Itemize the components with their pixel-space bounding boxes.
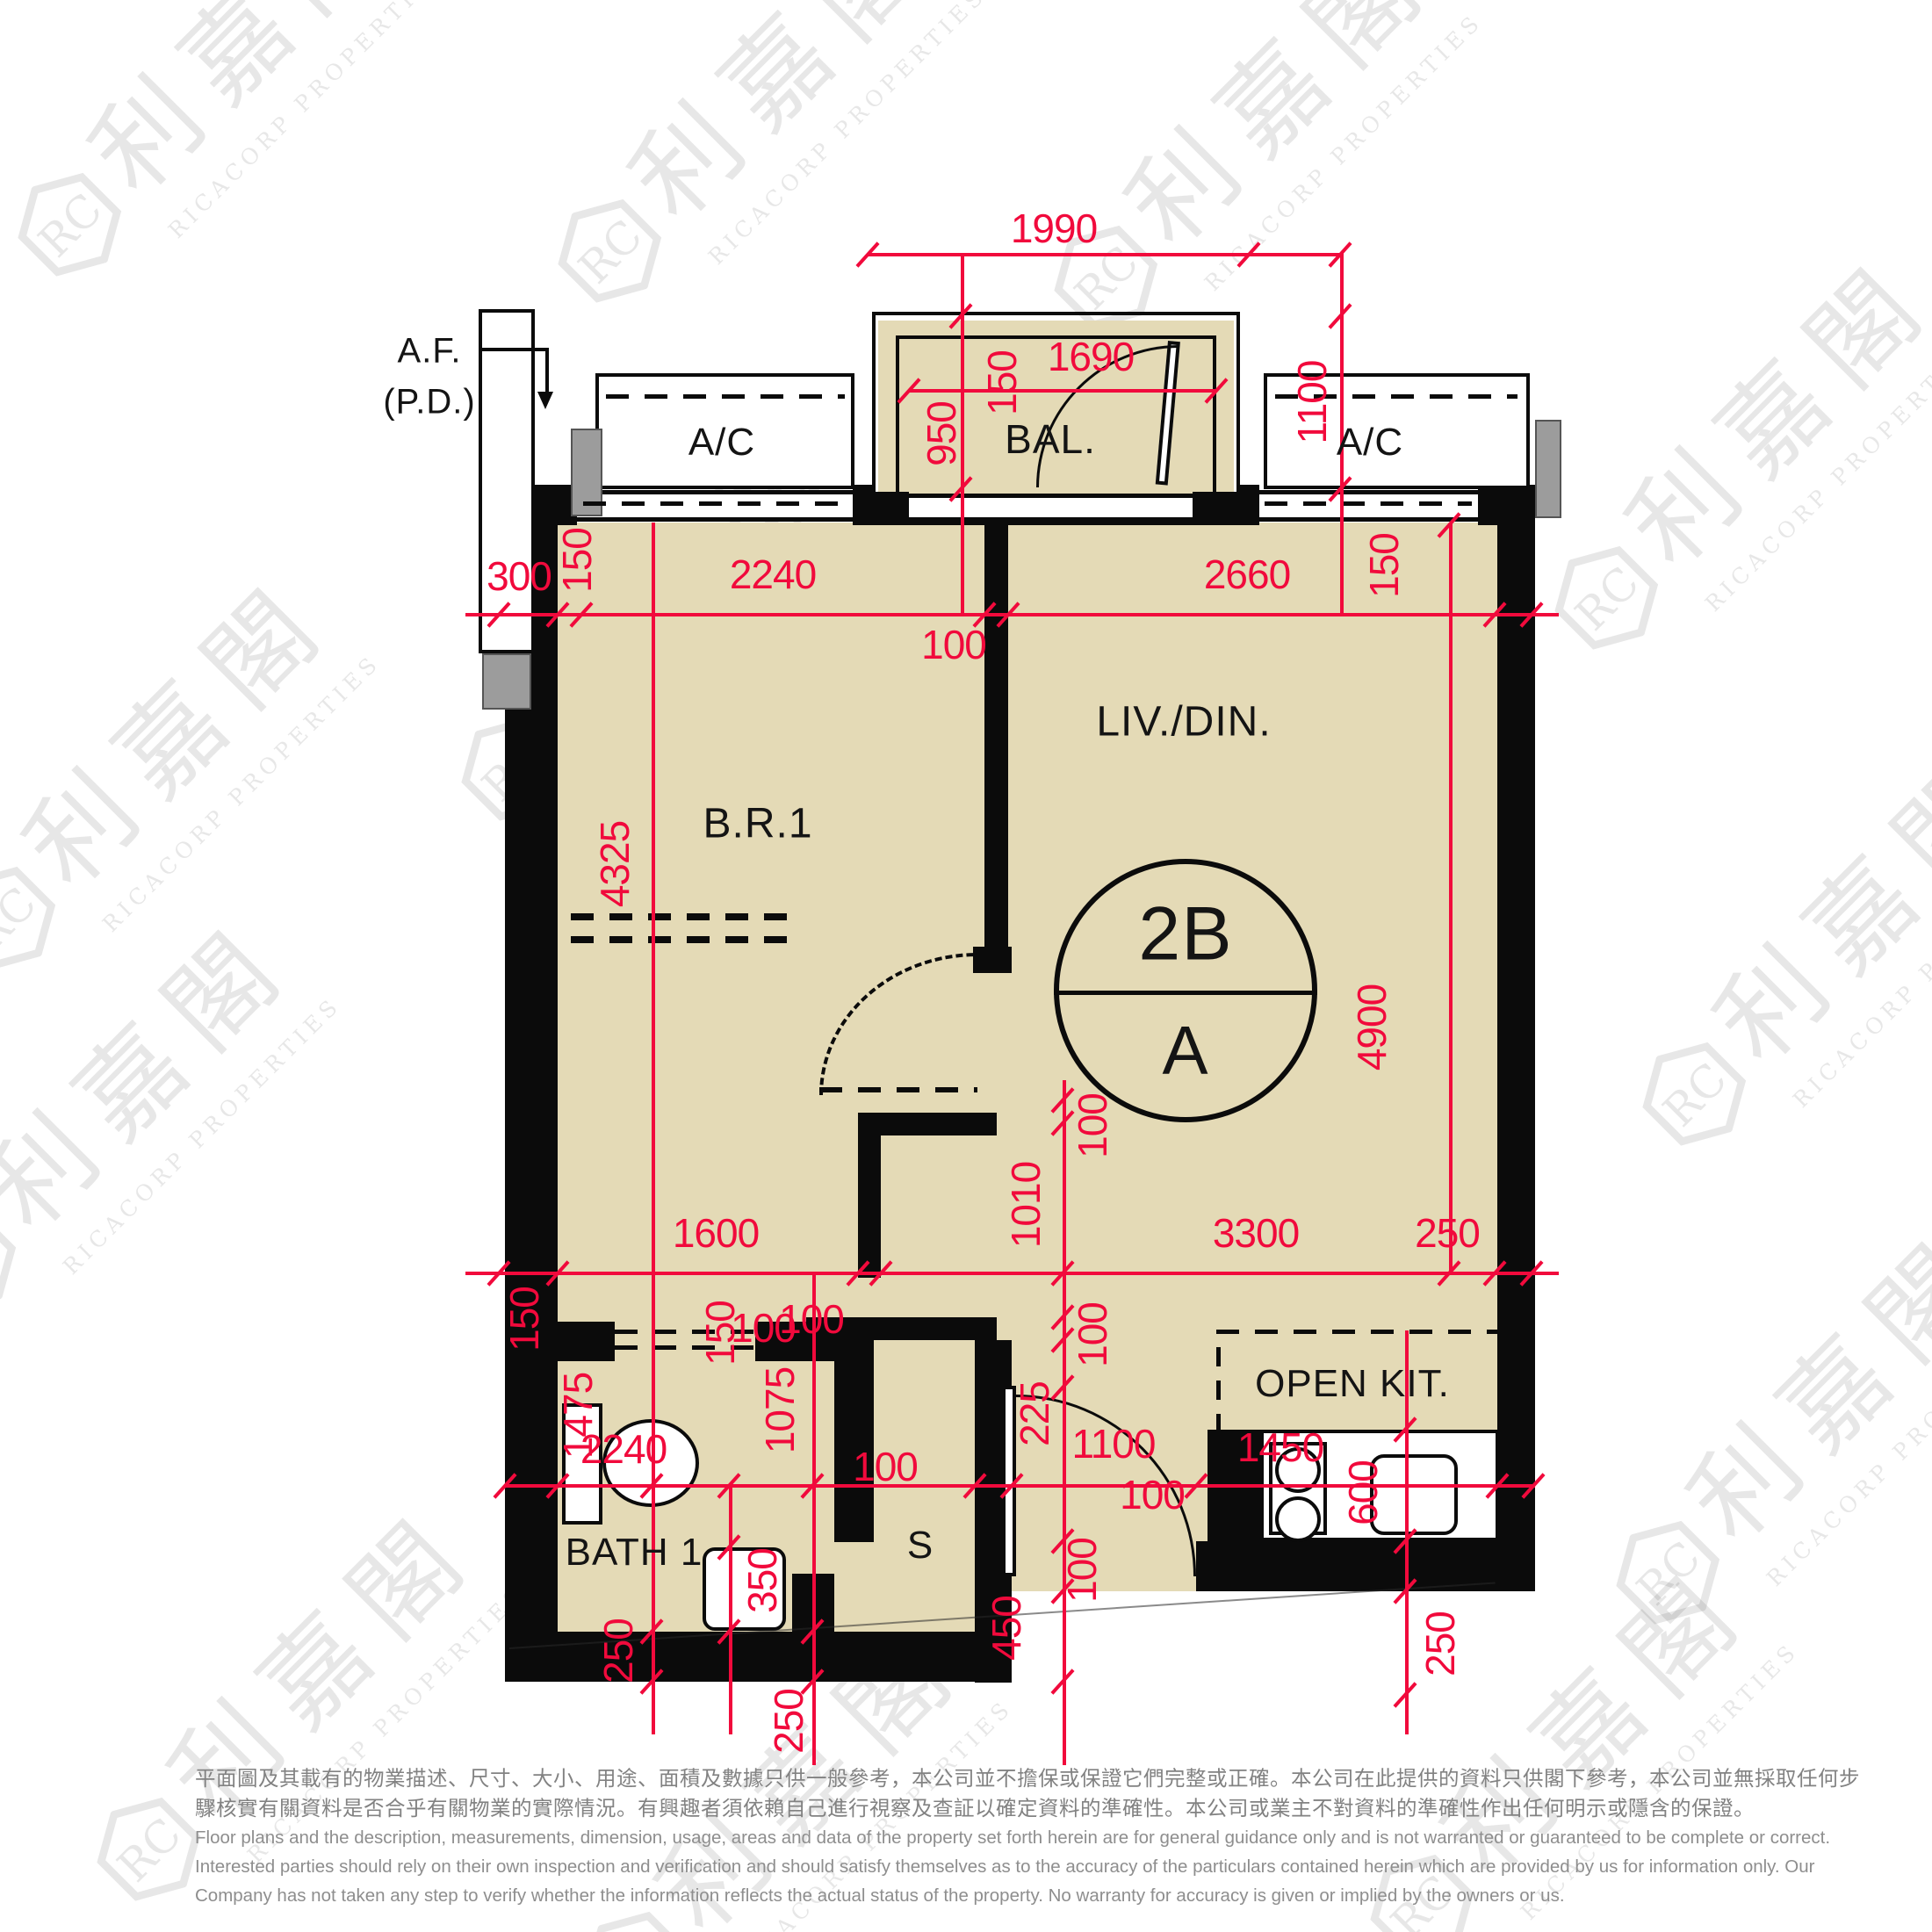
unit-badge-circle-top: 2B	[1138, 891, 1232, 978]
window-wall-right	[1259, 490, 1478, 522]
dim-line	[729, 1484, 732, 1734]
af-leader	[545, 348, 549, 393]
pipe-duct-cap	[482, 653, 531, 710]
bath-bottom-wall	[505, 1632, 1012, 1682]
floorplan-drawing: 2BA1990169015095011003001502240100266015…	[0, 0, 1932, 1932]
dim-label-3300: 3300	[1213, 1213, 1299, 1253]
window-cap	[853, 485, 872, 525]
dim-label-150: 150	[982, 350, 1022, 415]
af-leader	[479, 348, 549, 351]
ac-louvre-dash	[606, 394, 845, 399]
dim-label-100: 100	[853, 1446, 918, 1487]
room-label-living-dining: LIV./DIN.	[1096, 698, 1271, 746]
disclaimer-zh-line2: 驟核實有關資料是否合乎有關物業的實際情況。有興趣者須依賴自己進行視察及查証以確定…	[195, 1793, 1860, 1823]
window-dash	[1265, 501, 1472, 506]
dim-label-150: 150	[504, 1287, 544, 1352]
af-leader-arrowhead	[537, 392, 553, 409]
dim-label-250: 250	[1420, 1611, 1460, 1676]
dim-label-4325: 4325	[595, 821, 635, 907]
wardrobe-dash	[571, 913, 801, 920]
disclaimer-en-line1: Floor plans and the description, measure…	[195, 1823, 1860, 1852]
dim-label-100: 100	[1120, 1474, 1185, 1515]
window-cap	[1240, 485, 1259, 525]
nook-wall-top	[858, 1113, 997, 1135]
dim-label-250: 250	[598, 1618, 638, 1683]
floorplan-page: RC利嘉閣RICACORP PROPERTIESRC利嘉閣RICACORP PR…	[0, 0, 1932, 1932]
dim-label-100: 100	[1072, 1302, 1113, 1367]
dim-label-100: 100	[921, 624, 986, 665]
dim-label-1690: 1690	[1048, 336, 1134, 377]
bath-store-divider	[834, 1322, 874, 1542]
label-af: A.F.	[398, 332, 462, 371]
kitchen-boundary-dash-v	[1216, 1330, 1221, 1433]
disclaimer-zh-line1: 平面圖及其載有的物業描述、尺寸、大小、用途、面積及數據只供一般參考，本公司並不擔…	[195, 1763, 1860, 1793]
dim-line	[1449, 523, 1453, 1273]
dim-label-1990: 1990	[1011, 208, 1097, 249]
dim-label-250: 250	[1415, 1213, 1480, 1253]
dim-label-950: 950	[921, 401, 962, 466]
bedroom-door-jamb	[973, 947, 1012, 973]
window-dash	[583, 501, 847, 506]
room-label-ac-right: A/C	[1337, 421, 1403, 465]
burner	[1275, 1496, 1321, 1542]
room-label-store: S	[907, 1524, 934, 1568]
dim-line	[812, 1272, 816, 1765]
dim-label-250: 250	[768, 1689, 809, 1754]
right-wall	[1497, 485, 1535, 1591]
nook-wall-left	[858, 1135, 881, 1278]
dim-label-600: 600	[1343, 1460, 1383, 1525]
dim-label-150: 150	[1364, 533, 1404, 598]
dim-label-100: 100	[731, 1308, 796, 1348]
dim-label-2240: 2240	[580, 1429, 667, 1469]
dim-label-100: 100	[1072, 1093, 1113, 1158]
disclaimer-en-line3: Company has not taken any step to verify…	[195, 1881, 1860, 1910]
unit-badge-circle-divider	[1054, 991, 1317, 995]
dim-label-225: 225	[1014, 1381, 1055, 1446]
dim-label-300: 300	[487, 556, 551, 596]
dim-line	[909, 389, 1216, 393]
dim-line	[1063, 1080, 1066, 1765]
kitchen-boundary-dash	[1216, 1330, 1497, 1334]
disclaimer-en-line2: Interested parties should rely on their …	[195, 1852, 1860, 1881]
window-wall-left	[577, 490, 853, 522]
dim-label-1100: 1100	[1292, 361, 1332, 444]
room-label-balcony: BAL.	[1005, 415, 1096, 463]
window-cap	[1478, 485, 1497, 525]
bath-top-wall-left	[558, 1322, 615, 1361]
wardrobe-dash	[571, 936, 801, 943]
disclaimer-block: 平面圖及其載有的物業描述、尺寸、大小、用途、面積及數據只供一般參考，本公司並不擔…	[195, 1763, 1860, 1910]
dim-label-1100: 1100	[1072, 1424, 1156, 1464]
dim-label-100: 100	[1062, 1538, 1102, 1603]
dim-label-350: 350	[742, 1548, 782, 1613]
dim-label-4900: 4900	[1352, 984, 1392, 1071]
entry-bottom-wall	[1196, 1541, 1497, 1591]
room-label-ac-left: A/C	[688, 421, 755, 465]
dim-label-1075: 1075	[760, 1367, 800, 1453]
dim-line	[465, 613, 1559, 616]
room-label-open-kitchen: OPEN KIT.	[1255, 1362, 1450, 1406]
bedroom-living-wall	[984, 521, 1008, 953]
dim-label-1010: 1010	[1006, 1162, 1046, 1248]
dim-label-150: 150	[557, 528, 597, 593]
dim-label-2660: 2660	[1204, 554, 1290, 595]
label-pd: (P.D.)	[383, 383, 475, 422]
room-label-bath1: BATH 1	[566, 1531, 703, 1575]
unit-badge-circle-bottom: A	[1162, 1011, 1208, 1091]
room-label-bedroom1: B.R.1	[703, 800, 812, 848]
dim-line	[868, 253, 1340, 256]
dim-label-2240: 2240	[730, 554, 816, 595]
dim-line	[465, 1272, 1559, 1275]
dim-label-1450: 1450	[1237, 1427, 1323, 1467]
dim-label-450: 450	[986, 1596, 1027, 1661]
ac-bracket-right	[1535, 420, 1561, 518]
dim-label-1600: 1600	[673, 1213, 759, 1253]
